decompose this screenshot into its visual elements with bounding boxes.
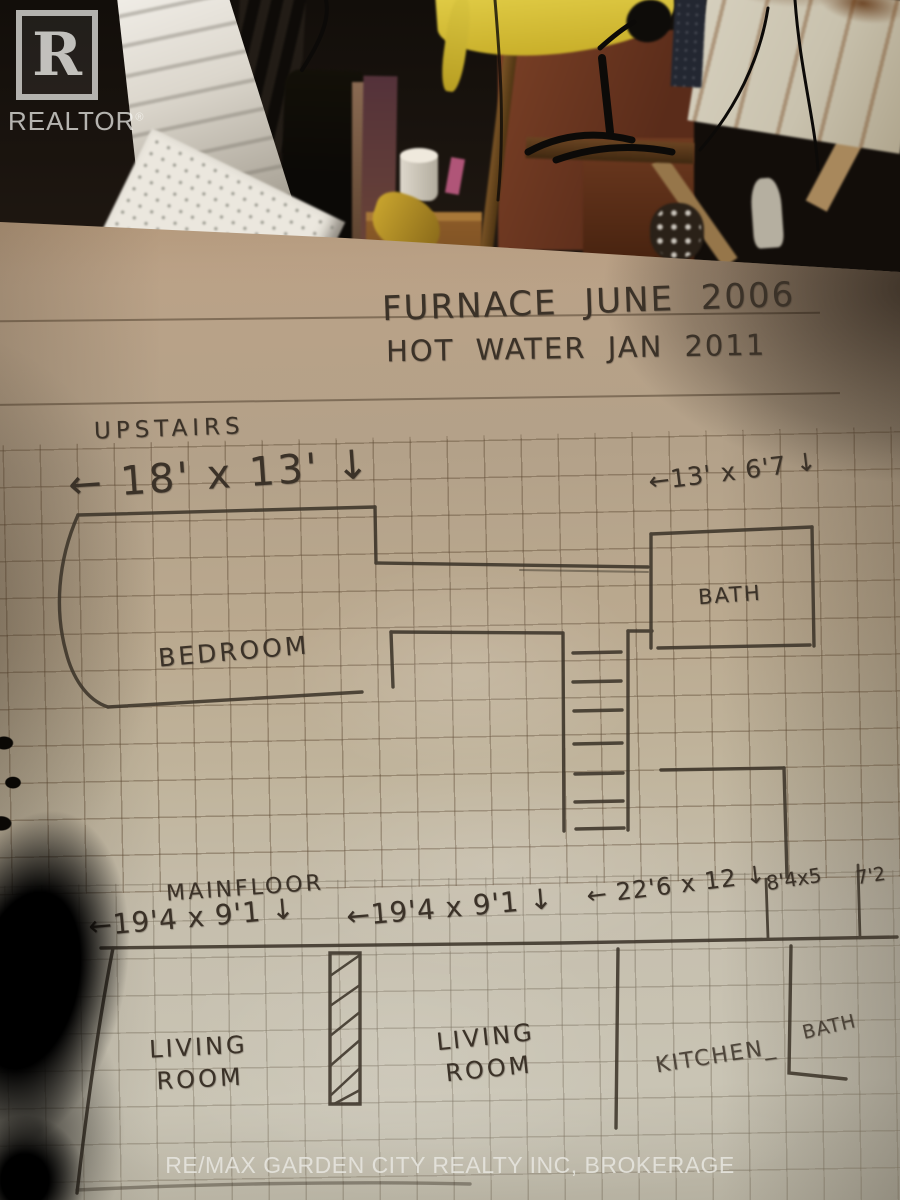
upstairs-label: UPSTAIRS (94, 413, 245, 444)
living-room-1-line2: ROOM (150, 1061, 250, 1099)
hot-water-note: HOT WATER JAN 2011 (386, 328, 767, 369)
edge-dimension: 7'2 (854, 863, 886, 889)
listing-photo: FURNACE JUNE 2006 HOT WATER JAN 2011 UPS… (0, 0, 900, 1200)
realtor-logo-letter: R (32, 25, 82, 85)
realtor-logo-box: R (16, 10, 98, 100)
living-room-1-label: LIVING ROOM (148, 1028, 250, 1098)
bath-upstairs-label: BATH (697, 581, 762, 609)
brokerage-watermark: RE/MAX GARDEN CITY REALTY INC, BROKERAGE (0, 1152, 900, 1179)
living-room-2-label: LIVING ROOM (435, 1016, 540, 1091)
realtor-logo-text: REALTOR® (8, 106, 145, 137)
registered-mark: ® (135, 111, 144, 123)
realtor-watermark: R REALTOR® (8, 6, 168, 141)
living-room-1-line1: LIVING (148, 1028, 248, 1066)
